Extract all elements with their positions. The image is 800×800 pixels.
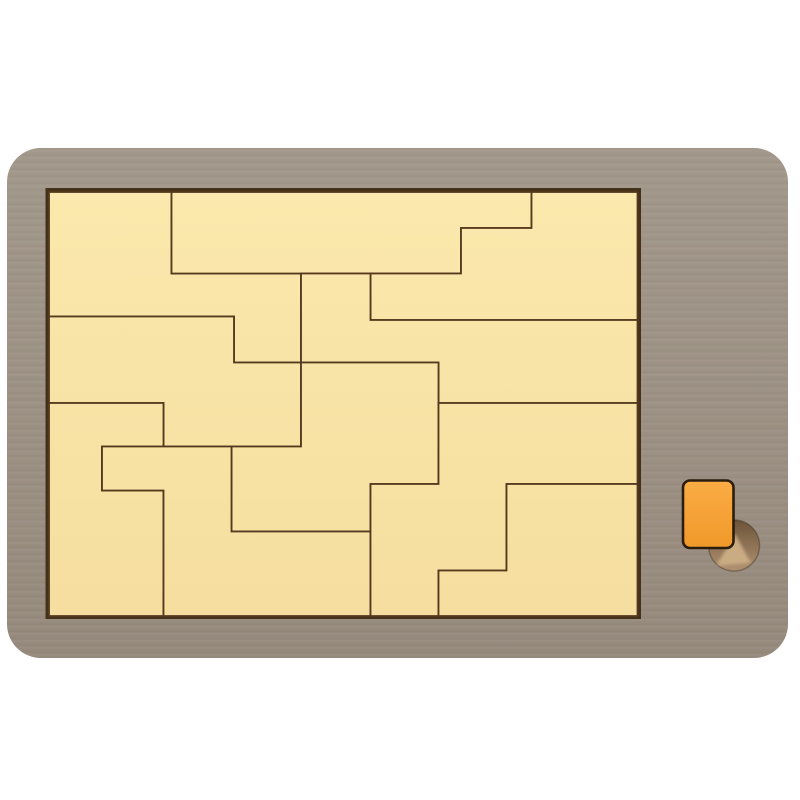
orange-piece[interactable] [683, 481, 734, 549]
tray-pieces [49, 192, 638, 616]
photo-canvas [0, 0, 800, 800]
wooden-puzzle-scene [0, 0, 800, 800]
puzzle-piece-bottom-left[interactable] [49, 403, 164, 616]
